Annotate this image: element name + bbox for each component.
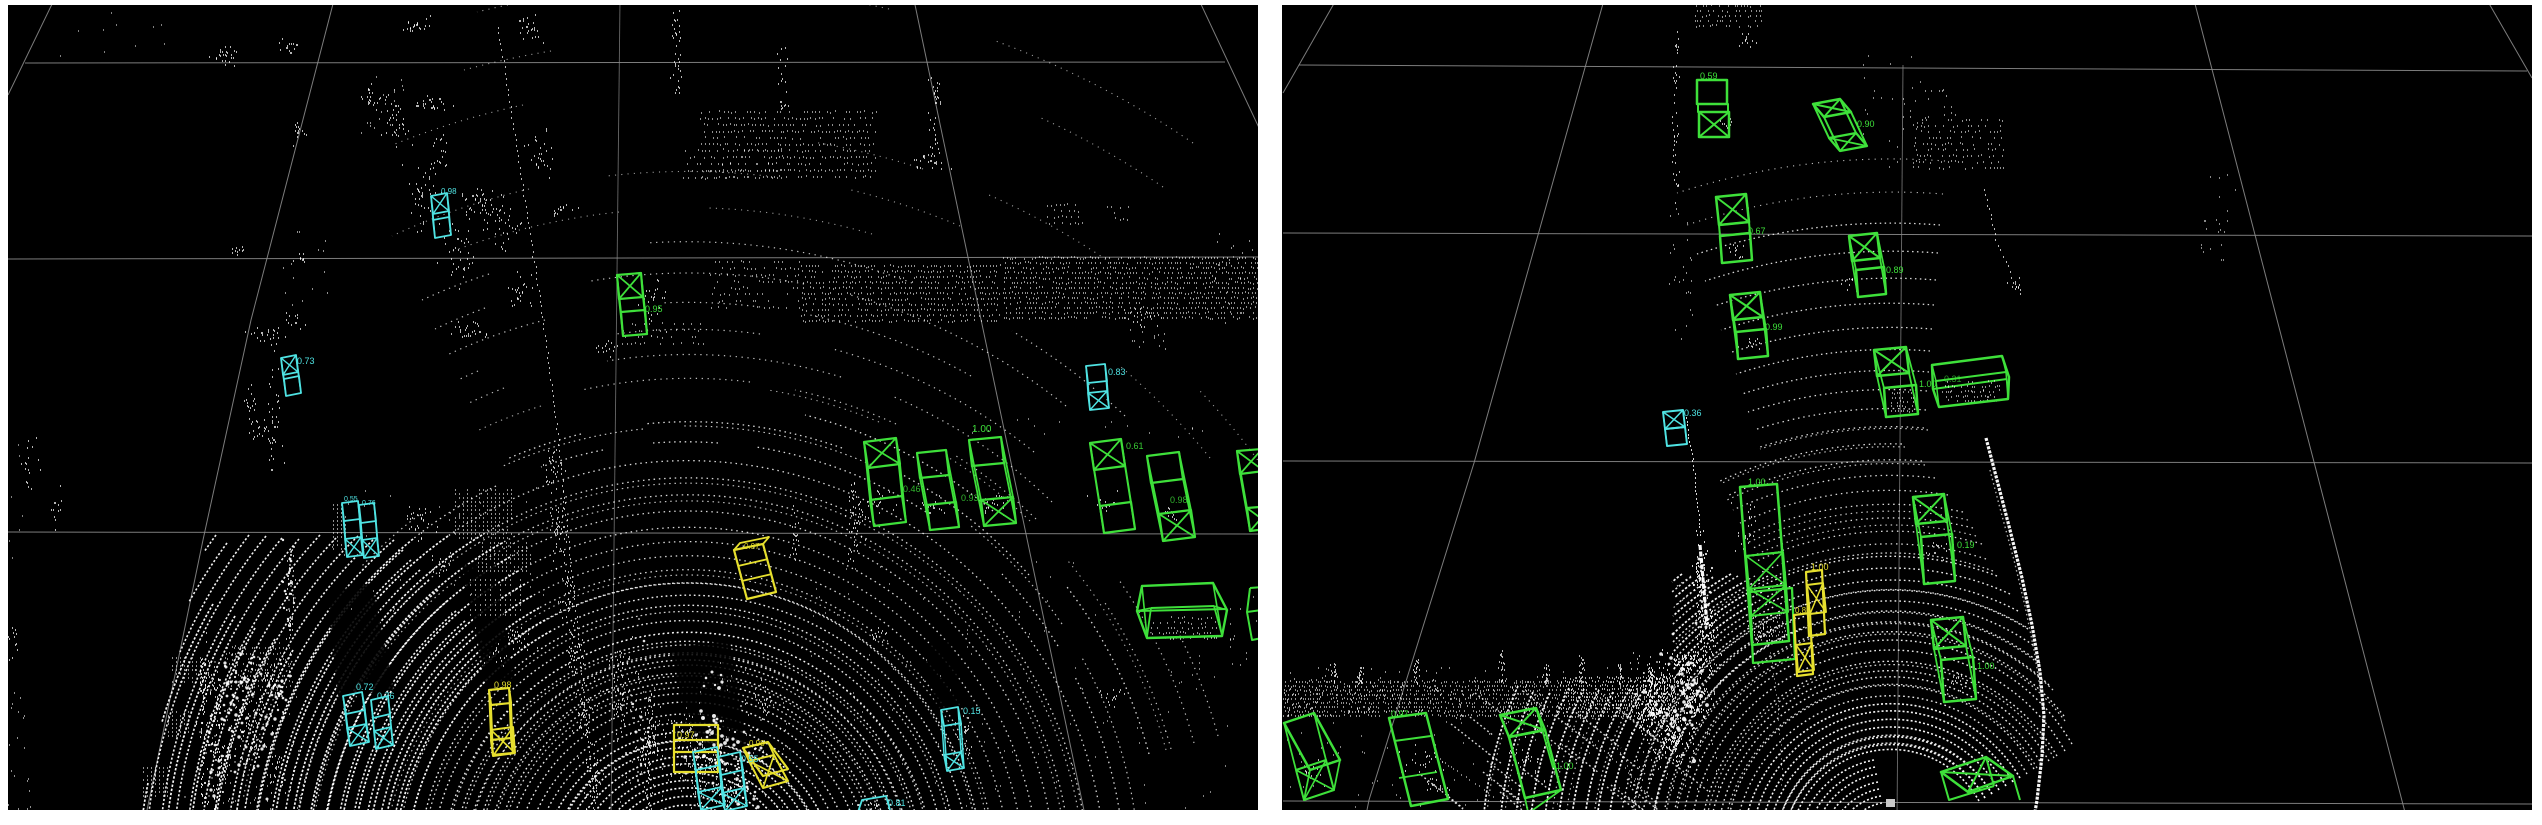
svg-text:0.98: 0.98 [1170, 495, 1188, 505]
svg-text:0.55: 0.55 [741, 754, 759, 764]
svg-text:0.15: 0.15 [963, 706, 981, 716]
svg-text:1.00: 1.00 [972, 424, 992, 435]
svg-text:0.81: 0.81 [888, 798, 906, 808]
svg-text:0.97: 0.97 [677, 730, 695, 740]
svg-text:0.97: 0.97 [1391, 709, 1409, 719]
svg-text:0.67: 0.67 [1748, 226, 1766, 236]
svg-text:1.00: 1.00 [1977, 661, 1995, 671]
svg-text:0.59: 0.59 [1700, 71, 1718, 81]
svg-text:0.98: 0.98 [749, 739, 765, 748]
svg-text:1.00: 1.00 [1748, 477, 1766, 487]
svg-text:0.99: 0.99 [1765, 322, 1783, 332]
svg-text:0.93: 0.93 [961, 493, 979, 503]
svg-text:0.61: 0.61 [1126, 441, 1144, 451]
svg-text:0.46: 0.46 [903, 484, 921, 494]
svg-text:0.98: 0.98 [441, 187, 457, 196]
svg-text:0.76: 0.76 [377, 691, 395, 701]
svg-text:0.55: 0.55 [344, 496, 358, 503]
svg-text:0.98: 0.98 [494, 680, 512, 690]
svg-text:0.90: 0.90 [1857, 119, 1875, 129]
svg-text:0.36: 0.36 [1684, 408, 1702, 418]
svg-text:0.86: 0.86 [1795, 606, 1811, 615]
svg-text:0.73: 0.73 [297, 356, 315, 366]
svg-text:1.00: 1.00 [1556, 761, 1574, 771]
svg-text:0.97: 0.97 [744, 542, 760, 551]
svg-text:1.00: 1.00 [1811, 562, 1829, 572]
svg-text:0.19: 0.19 [1957, 540, 1975, 550]
svg-text:0.72: 0.72 [356, 682, 374, 692]
svg-text:0.76: 0.76 [362, 500, 376, 507]
svg-text:0.89: 0.89 [1886, 265, 1904, 275]
svg-text:0.95: 0.95 [645, 304, 663, 314]
svg-text:0.83: 0.83 [1108, 367, 1126, 377]
